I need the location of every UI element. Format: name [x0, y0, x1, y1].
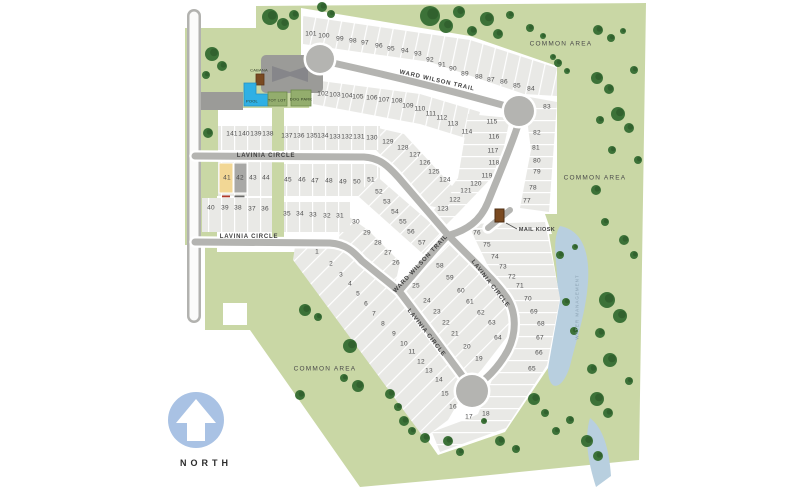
tree-icon — [509, 12, 513, 16]
mail-kiosk-icon — [495, 209, 504, 222]
tree-icon — [497, 30, 503, 36]
tree-icon — [330, 11, 334, 15]
tree-icon — [544, 410, 548, 414]
tree-icon — [459, 449, 463, 453]
tree-icon — [356, 381, 363, 388]
tree-icon — [427, 8, 438, 19]
tree-icon — [623, 236, 629, 242]
tree-icon — [585, 436, 592, 443]
tree-icon — [610, 35, 614, 39]
tree-icon — [608, 355, 616, 363]
tree-icon — [574, 245, 577, 248]
tree-icon — [268, 11, 277, 20]
tree-icon — [569, 417, 573, 421]
lot-41-highlight — [219, 163, 233, 193]
tree-icon — [205, 72, 209, 76]
tree-icon — [618, 311, 626, 319]
tree-icon — [447, 437, 453, 443]
north-arrow-icon — [168, 392, 224, 448]
tree-icon — [595, 73, 602, 80]
tree-icon — [611, 147, 615, 151]
tree-icon — [552, 55, 555, 58]
tree-icon — [207, 129, 213, 135]
tree-icon — [628, 124, 634, 129]
tree-icon — [293, 11, 299, 17]
tree-icon — [317, 314, 321, 318]
lot-42-marker — [235, 196, 245, 198]
tot-lot-area — [268, 92, 287, 106]
parking-area — [199, 92, 243, 110]
tree-icon — [633, 67, 637, 71]
tree-icon — [299, 391, 305, 397]
tree-icon — [281, 19, 288, 26]
tree-icon — [529, 25, 533, 29]
tree-icon — [483, 419, 486, 422]
tree-icon — [411, 428, 415, 432]
tree-icon — [403, 417, 409, 423]
tree-icon — [597, 452, 603, 458]
tree-icon — [604, 219, 608, 223]
lot-41-marker — [222, 196, 230, 198]
site-map-drawing — [0, 0, 800, 490]
tree-icon — [321, 3, 327, 8]
tree-icon — [397, 404, 401, 408]
tree-icon — [559, 252, 563, 256]
green-corridor — [272, 108, 284, 240]
tree-icon — [471, 27, 477, 33]
tree-icon — [595, 394, 603, 402]
tree-icon — [221, 62, 227, 68]
tree-icon — [343, 375, 347, 379]
tree-icon — [532, 394, 539, 401]
tree-icon — [566, 69, 569, 72]
tree-icon — [616, 109, 624, 117]
tree-icon — [591, 365, 597, 371]
tree-icon — [515, 446, 519, 450]
tree-icon — [542, 34, 545, 37]
tree-icon — [444, 21, 452, 29]
tree-icon — [595, 186, 601, 192]
tree-icon — [348, 341, 356, 349]
tree-icon — [633, 252, 637, 256]
tree-icon — [457, 7, 464, 14]
tree-icon — [597, 26, 603, 32]
cabana-icon — [256, 74, 264, 85]
tree-icon — [628, 378, 632, 382]
tree-icon — [573, 328, 577, 332]
tree-icon — [303, 305, 310, 312]
tree-icon — [605, 294, 614, 303]
dog-park-area — [291, 90, 311, 106]
lot-42-highlight — [234, 163, 247, 193]
tree-icon — [499, 437, 505, 443]
tree-icon — [210, 49, 218, 57]
boundary-notch — [223, 303, 247, 325]
tree-icon — [599, 117, 603, 121]
tree-icon — [565, 299, 569, 303]
tree-icon — [608, 85, 614, 91]
site-plan-map: NORTH 1234567891011121314151617181920212… — [0, 0, 800, 490]
tree-icon — [607, 409, 613, 415]
tree-icon — [599, 329, 605, 335]
tree-icon — [637, 157, 641, 161]
tree-icon — [557, 60, 561, 64]
tree-icon — [424, 434, 430, 440]
tree-icon — [389, 390, 395, 396]
tree-icon — [622, 29, 625, 32]
tree-icon — [485, 14, 493, 22]
tree-icon — [555, 428, 559, 432]
